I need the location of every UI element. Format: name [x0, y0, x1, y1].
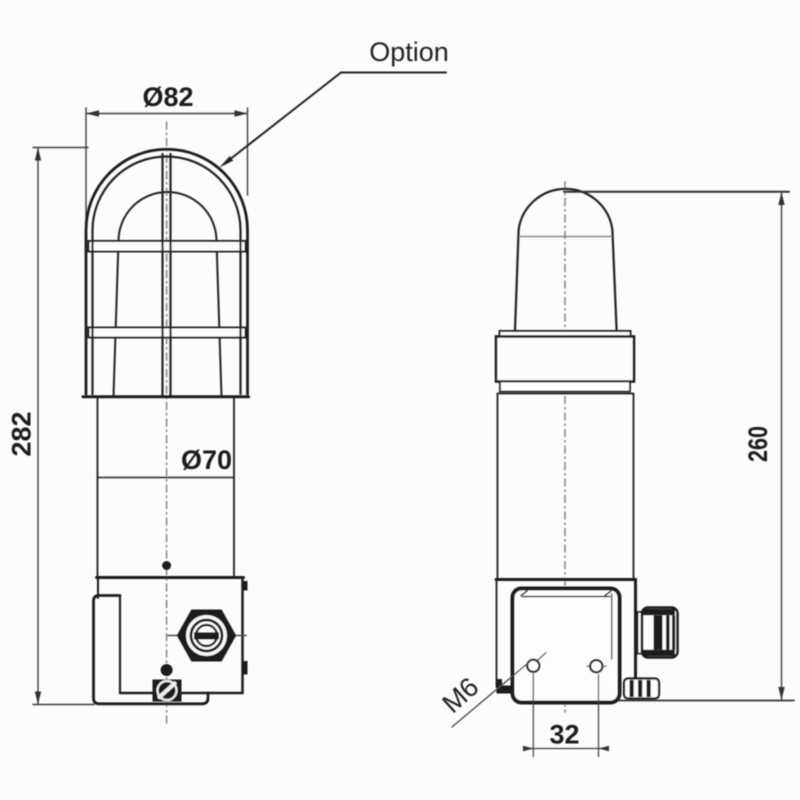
svg-text:32: 32: [549, 720, 579, 750]
svg-text:282: 282: [7, 412, 37, 457]
svg-text:Ø82: Ø82: [142, 82, 193, 112]
svg-text:Option: Option: [369, 37, 449, 67]
svg-text:260: 260: [743, 426, 773, 462]
svg-text:Ø70: Ø70: [181, 445, 232, 475]
